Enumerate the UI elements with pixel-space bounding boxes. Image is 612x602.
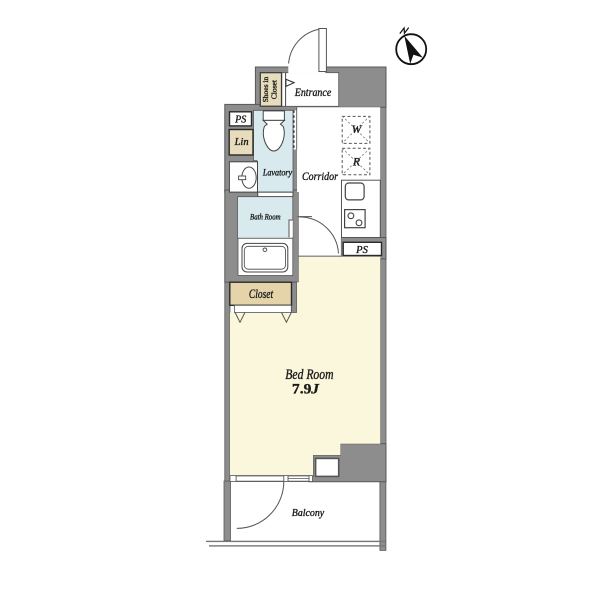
svg-text:Lin: Lin	[234, 137, 249, 148]
svg-text:Balcony: Balcony	[292, 508, 325, 519]
svg-text:Entrance: Entrance	[294, 87, 331, 99]
svg-text:R: R	[352, 157, 360, 169]
svg-text:Closet: Closet	[249, 286, 273, 301]
svg-text:Closet: Closet	[269, 79, 278, 99]
svg-text:PS: PS	[234, 115, 246, 126]
svg-text:Corridor: Corridor	[302, 171, 338, 183]
svg-text:W: W	[352, 124, 363, 136]
svg-text:7.9J: 7.9J	[292, 382, 320, 398]
svg-text:PS: PS	[355, 245, 368, 256]
svg-text:Bath Room: Bath Room	[250, 211, 281, 221]
svg-text:Lavatory: Lavatory	[262, 168, 292, 178]
